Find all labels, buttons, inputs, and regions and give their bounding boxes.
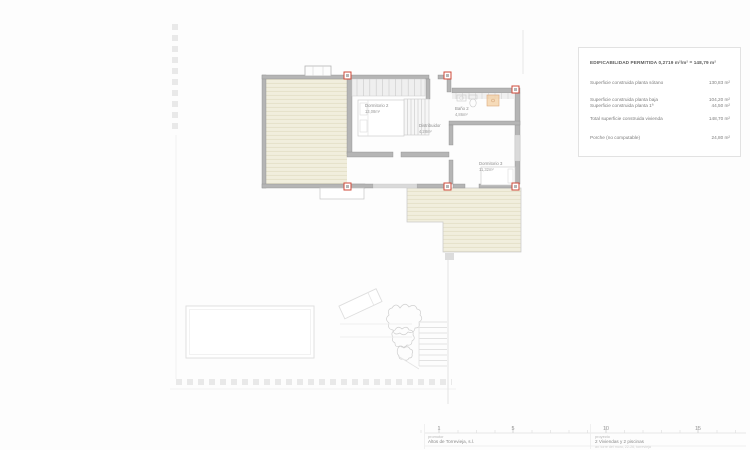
legend-value: 24,80 m²: [712, 135, 731, 142]
legend-label: Superficie construida planta sótano: [590, 80, 663, 87]
room-label-dormitorio-3: Dormitorio 3: [479, 161, 503, 166]
room-label-dormitorio-2: Dormitorio 2: [365, 103, 389, 108]
scale-number-1: 1: [438, 426, 441, 432]
proyecto-block: proyecto 2 Viviendas y 2 piscinas av. to…: [595, 435, 651, 450]
legend-row-primera: Superficie construida planta 1ª 44,50 m²: [590, 103, 730, 110]
room-area-dormitorio-3: 11,32m²: [479, 167, 494, 172]
porch-step: [320, 188, 364, 199]
legend-label: Superficie construida planta 1ª: [590, 103, 654, 110]
vegetation: [387, 304, 422, 360]
planter-bench: [339, 289, 382, 319]
scale-number-10: 10: [603, 426, 609, 432]
wardrobe: [352, 79, 425, 96]
room-area-dormitorio-2: 13,08m²: [365, 109, 381, 114]
porch-deck: [407, 188, 521, 252]
legend-label: Total superficie construida vivienda: [590, 116, 663, 123]
promotor-name: Altos de Torrevieja, s.l.: [428, 440, 474, 445]
legend-row-total: Total superficie construida vivienda 148…: [590, 116, 730, 123]
legend-value: 44,50 m²: [712, 103, 731, 110]
chimney-bump: [305, 66, 331, 76]
swimming-pool: [186, 306, 314, 358]
terrace-deck: [266, 79, 347, 184]
legend-value: 148,70 m²: [709, 116, 730, 123]
proyecto-address: av. torre del moro, 22-26, torrevieja: [595, 445, 651, 450]
exterior-stairs: [340, 322, 447, 369]
room-label-distribuidor: Distribuidor: [419, 123, 441, 128]
legend-value: 130,83 m²: [709, 80, 730, 87]
legend-title: EDIFICABILIDAD PERMITIDA 0,2719 m²/m² = …: [590, 60, 730, 65]
legend-label: Porche (no computable): [590, 135, 640, 142]
room-area-distribuidor: 4,28m²: [419, 129, 432, 134]
room-label-bano-2: Baño 2: [455, 106, 469, 111]
scale-number-5: 5: [512, 426, 515, 432]
legend-row-sotano: Superficie construida planta sótano 130,…: [590, 80, 730, 87]
promotor-block: promotor Altos de Torrevieja, s.l.: [428, 435, 474, 445]
legend-box: EDIFICABILIDAD PERMITIDA 0,2719 m²/m² = …: [578, 47, 741, 157]
room-area-bano-2: 4,86m²: [455, 112, 468, 117]
scale-number-15: 15: [695, 426, 701, 432]
legend-row-porche: Porche (no computable) 24,80 m²: [590, 135, 730, 142]
plan-sheet: Dormitorio 2 13,08m² Baño 2 4,86m² Distr…: [0, 0, 750, 450]
